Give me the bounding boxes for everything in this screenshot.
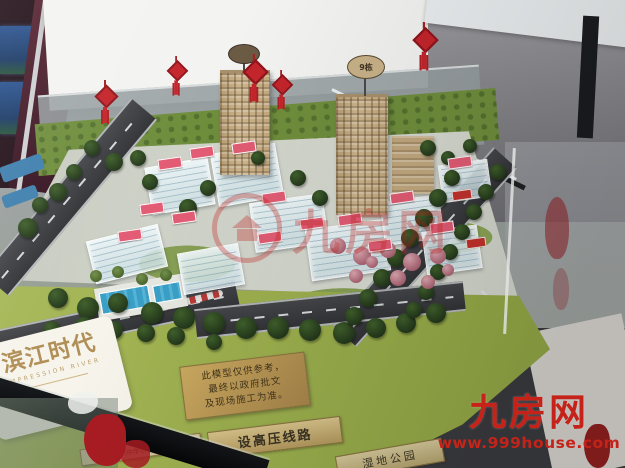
tree <box>108 293 128 313</box>
flowering-shrub <box>430 248 446 264</box>
palm-tree <box>112 266 124 278</box>
red-ribbon-decoration <box>84 414 126 466</box>
power-line-sign-label: 设高压线路 <box>237 424 314 452</box>
sign-pole <box>364 76 366 96</box>
chinese-knot-decoration <box>168 56 184 101</box>
tree <box>235 317 257 339</box>
chinese-knot-decoration <box>414 22 434 77</box>
chinese-knot-decoration <box>244 54 264 109</box>
tree <box>312 190 328 206</box>
tree <box>66 164 82 180</box>
tree <box>203 312 225 334</box>
flowering-shrub <box>421 275 435 289</box>
red-decoration-reflection <box>545 197 569 259</box>
tower-b <box>336 94 388 215</box>
palm-tree <box>160 269 172 281</box>
showroom-model-photo: 9栋 滨江时代 IMPRESSION RIVER 此模型仅供参考， 最终以政府批… <box>0 0 625 468</box>
tree <box>173 307 195 329</box>
palm-tree <box>90 270 102 282</box>
flowering-shrub <box>330 238 346 254</box>
tree <box>444 170 460 186</box>
tree <box>137 324 155 342</box>
tree <box>454 224 470 240</box>
tree <box>401 229 419 247</box>
chinese-knot-decoration <box>273 70 289 115</box>
chinese-knot-decoration <box>96 80 114 130</box>
tree <box>206 334 222 350</box>
flowering-shrub <box>366 256 378 268</box>
flowering-shrub <box>390 270 406 286</box>
flowering-shrub <box>442 264 454 276</box>
tree <box>290 170 306 186</box>
tree <box>77 297 99 319</box>
tower-b-sign-oval: 9栋 <box>347 55 385 79</box>
tree <box>359 289 377 307</box>
tree <box>18 218 38 238</box>
flowering-shrub <box>349 269 363 283</box>
tree <box>167 327 185 345</box>
tree <box>84 140 100 156</box>
building-number-label: 9栋 <box>359 62 373 73</box>
tree <box>32 197 48 213</box>
tree <box>463 139 477 153</box>
tree <box>466 204 482 220</box>
flowering-shrub <box>403 253 421 271</box>
tree <box>366 318 386 338</box>
red-decoration-reflection <box>553 268 569 310</box>
tree <box>345 307 363 325</box>
tree <box>426 303 446 323</box>
swimming-pool <box>152 281 183 304</box>
red-ornament <box>584 424 610 468</box>
tree <box>142 174 158 190</box>
palm-tree <box>136 273 148 285</box>
red-ribbon-decoration <box>120 440 150 468</box>
tree <box>130 150 146 166</box>
tree <box>490 164 506 180</box>
tree <box>333 322 355 344</box>
tree <box>299 319 321 341</box>
wetland-park-sign-label: 湿地公园 <box>361 446 419 468</box>
tree <box>420 140 436 156</box>
tree <box>478 184 494 200</box>
tree <box>105 153 123 171</box>
tree <box>429 189 447 207</box>
tree <box>141 302 163 324</box>
tree <box>200 180 216 196</box>
tree <box>373 269 391 287</box>
tree <box>49 183 67 201</box>
tree <box>406 302 422 318</box>
tree <box>251 151 265 165</box>
tree <box>48 288 68 308</box>
tree <box>267 317 289 339</box>
